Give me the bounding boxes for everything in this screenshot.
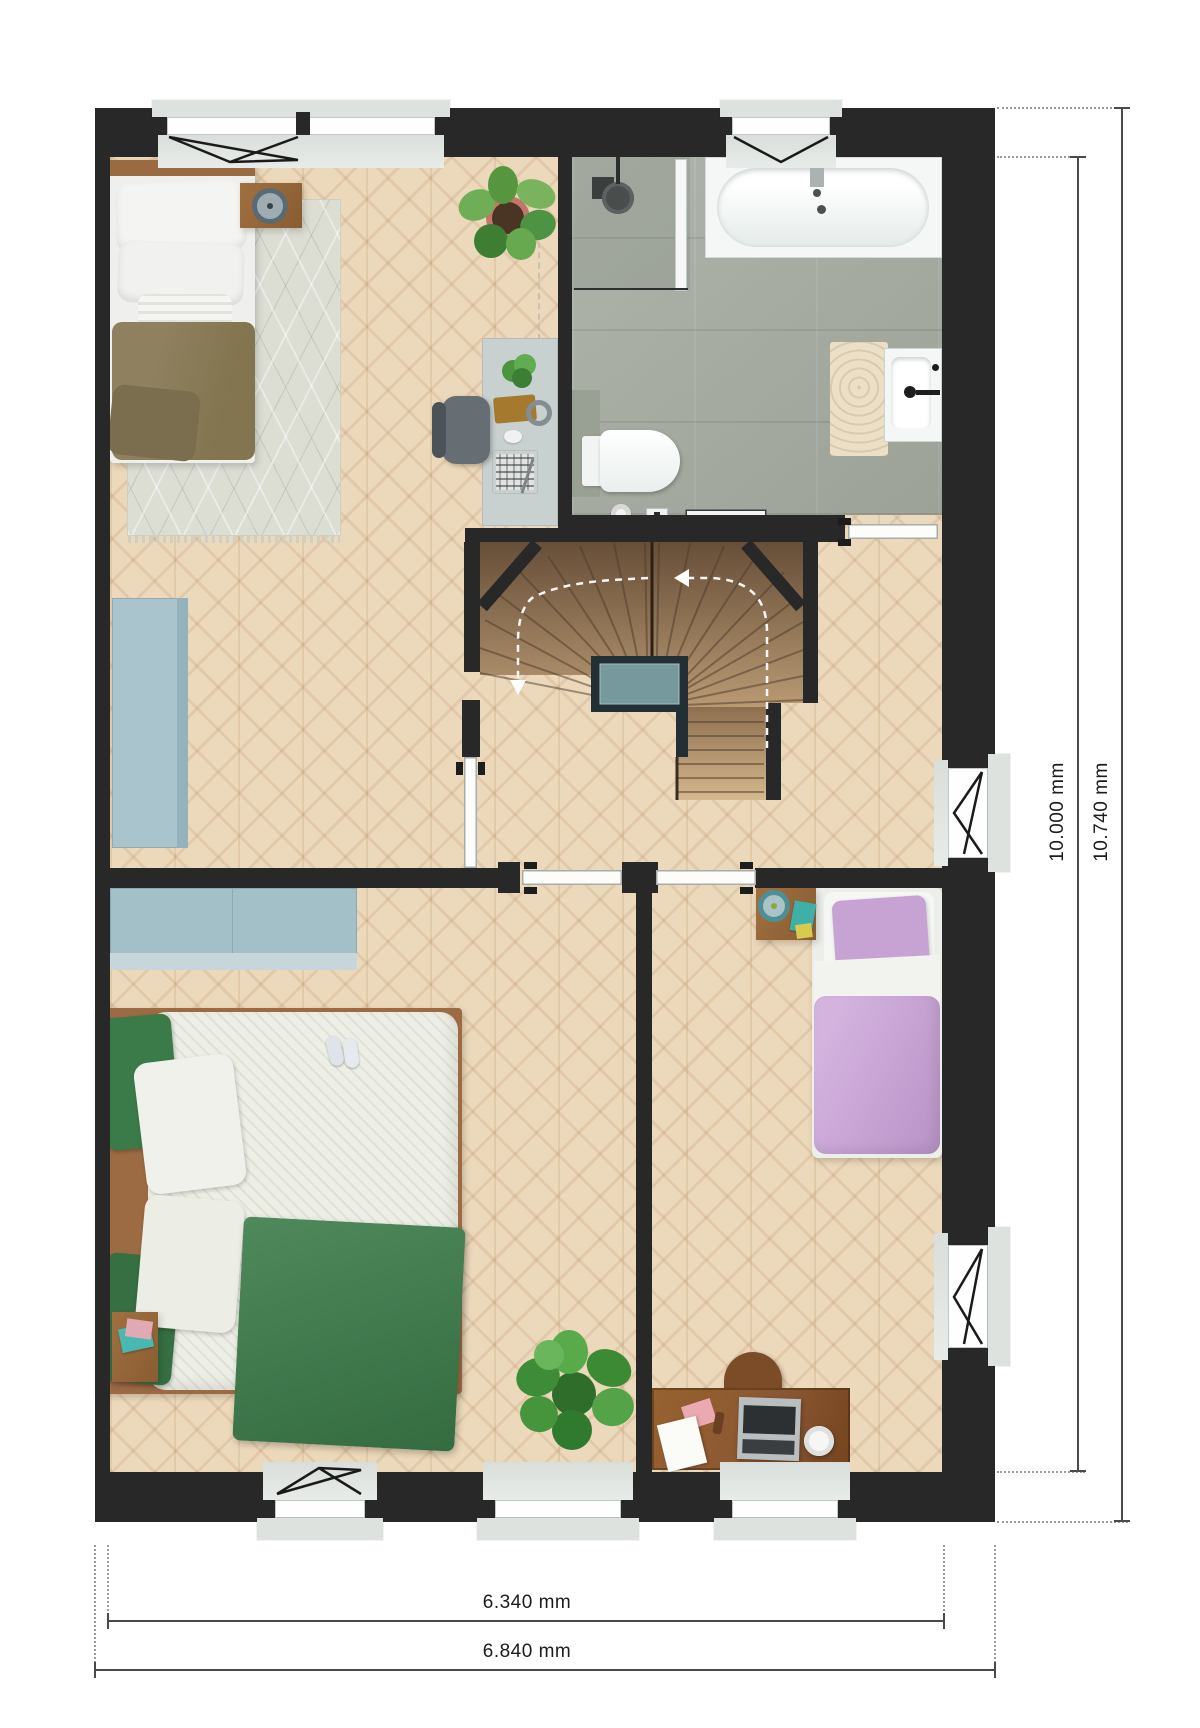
bed-throw-green <box>232 1216 465 1451</box>
book-pink <box>125 1318 153 1339</box>
shower-head-icon <box>602 182 634 214</box>
bedroom1-cabinet <box>112 598 188 848</box>
floor-plan: 10.000 mm 10.740 mm 6.340 mm 6.840 mm <box>0 0 1200 1728</box>
washbasin <box>884 348 942 442</box>
desk-plant-icon <box>500 352 540 392</box>
bedroom3-desk <box>652 1388 850 1470</box>
exterior-wall-left <box>95 108 110 1522</box>
book-yellow <box>795 923 813 939</box>
laptop-icon <box>737 1397 801 1461</box>
extension-line <box>94 1545 96 1675</box>
dimension-label-width-outer: 6.840 mm <box>483 1641 571 1663</box>
dimension-line-width-outer <box>95 1669 995 1671</box>
headphones-icon <box>526 400 552 426</box>
plant-icon <box>512 1328 638 1454</box>
mouse-icon <box>504 430 522 443</box>
dimension-label-height-outer: 10.740 mm <box>1091 762 1113 862</box>
bed-duvet-purple <box>814 996 940 1154</box>
shower-glass-panel <box>676 160 686 290</box>
plant-icon <box>458 168 558 268</box>
bedroom-divider-wall <box>636 888 652 1472</box>
shower-area <box>572 157 690 290</box>
bed-pillow-white <box>132 1052 247 1195</box>
bedroom2-nightstand <box>112 1312 158 1382</box>
extension-line <box>997 107 1128 109</box>
dimension-line-width-inner <box>108 1620 944 1622</box>
sneakers-icon <box>328 1036 364 1070</box>
bedroom3-bed <box>812 888 942 1158</box>
shower-screen-line <box>574 288 688 290</box>
hall-door-post-left <box>498 862 520 893</box>
dimension-line-height-outer <box>1121 108 1123 1522</box>
stairwell-wall-stub <box>462 700 480 757</box>
extension-line <box>997 1521 1128 1523</box>
dimension-label-height-inner: 10.000 mm <box>1047 762 1069 862</box>
bedroom2-wardrobe <box>110 888 357 970</box>
extension-line <box>994 1545 996 1675</box>
staircase <box>462 510 820 805</box>
bedroom1-rug-fringe <box>128 535 340 543</box>
dimension-label-width-inner: 6.340 mm <box>483 1592 571 1614</box>
hall-wall-left-segment <box>110 868 520 888</box>
stairwell-wall-top-left <box>465 528 558 542</box>
bathtub <box>705 157 942 258</box>
stairwell-wall-right <box>803 542 818 703</box>
bed-duvet-fold <box>107 384 202 463</box>
toilet <box>582 428 680 494</box>
stairwell-wall-left <box>464 542 480 672</box>
speaker-icon <box>252 188 288 224</box>
bedroom1-office-chair <box>430 392 492 468</box>
bath-mat <box>830 342 888 456</box>
desk-lamp-icon <box>804 1426 834 1456</box>
tub-drain-icon <box>817 205 826 214</box>
bathroom-wall <box>558 157 572 515</box>
stairwell-wall-top <box>558 515 845 542</box>
bedroom1-bed <box>110 160 255 463</box>
basin-faucet-icon <box>904 386 916 398</box>
speaker-icon <box>758 890 790 922</box>
dimension-line-height-inner <box>1077 157 1079 1472</box>
hall-wall-right-segment <box>755 868 942 888</box>
keyboard-icon <box>492 450 538 494</box>
